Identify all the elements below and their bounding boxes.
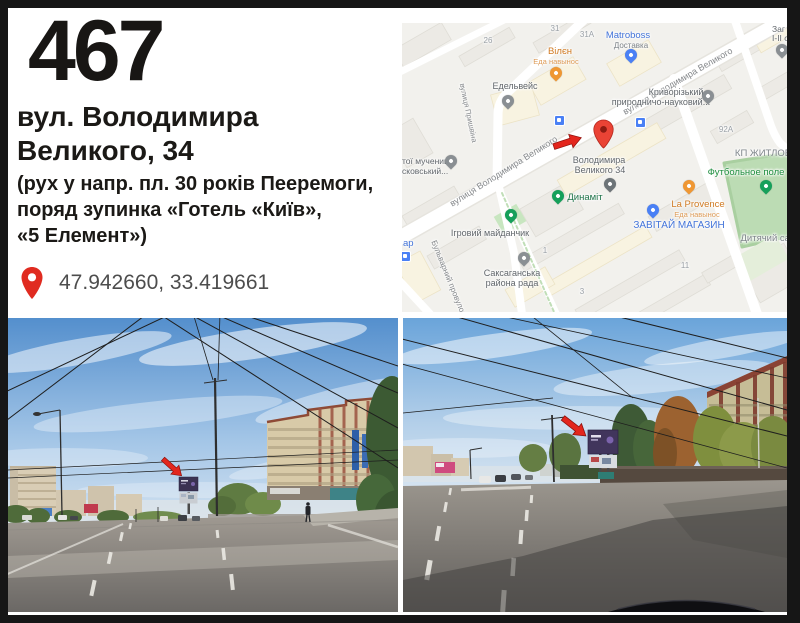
poi-church-sub: сковський... bbox=[402, 167, 448, 176]
map-screenshot: вулиця Володимира Великого вулиця Володи… bbox=[402, 23, 787, 312]
coordinates-row: 47.942660, 33.419661 bbox=[20, 266, 269, 300]
note-line-3: «5 Елемент») bbox=[17, 223, 373, 249]
billboard-location-card: 467 вул. Володимира Великого, 34 (рух у … bbox=[0, 0, 800, 623]
poi-zah-sub: І-ІІ с bbox=[772, 34, 787, 43]
card-inner: 467 вул. Володимира Великого, 34 (рух у … bbox=[8, 8, 787, 615]
distant-billboard bbox=[84, 504, 98, 513]
coordinates-text: 47.942660, 33.419661 bbox=[59, 271, 269, 295]
note-line-1: (рух у напр. пл. 30 років Пееремоги, bbox=[17, 171, 373, 197]
building-number: 31А bbox=[580, 31, 594, 39]
poi-football-field: Футбольное поле bbox=[708, 168, 785, 178]
address-line-1: вул. Володимира bbox=[17, 100, 258, 134]
poi-vilen-sub: Еда навынос bbox=[533, 58, 578, 66]
direction-note: (рух у напр. пл. 30 років Пееремоги, пор… bbox=[17, 171, 373, 249]
poi-church: тої мучениці bbox=[402, 157, 451, 166]
board-number: 467 bbox=[28, 2, 163, 101]
bus-stop-icon bbox=[635, 117, 646, 128]
poi-playground: Ігровий майданчик bbox=[451, 229, 529, 238]
address: вул. Володимира Великого, 34 bbox=[17, 100, 258, 168]
building-number: 1 bbox=[543, 247, 547, 255]
building-number: 31 bbox=[551, 25, 560, 33]
street-lamp bbox=[33, 412, 41, 416]
building-number: 92А bbox=[719, 126, 733, 134]
note-line-2: поряд зупинка «Готель «Київ», bbox=[17, 197, 373, 223]
poi-vilen: Вілєн bbox=[548, 47, 572, 57]
poi-saksahanska-sub: района рада bbox=[486, 279, 539, 288]
poi-target-address-sub: Великого 34 bbox=[575, 166, 626, 175]
info-panel: 467 вул. Володимира Великого, 34 (рух у … bbox=[8, 8, 400, 313]
poi-matroboss: Matroboss bbox=[606, 31, 650, 41]
poi-kp-zhytlov: КП ЖИТЛОВ bbox=[735, 149, 787, 159]
poi-dynamit: Динаміт bbox=[567, 193, 602, 203]
ar-transit-icon bbox=[402, 251, 411, 262]
building-banner bbox=[352, 430, 359, 470]
street-photo-right bbox=[403, 318, 787, 612]
building-number: 26 bbox=[484, 37, 493, 45]
poi-zavitai: ЗАВІТАЙ МАГАЗИН bbox=[633, 221, 724, 232]
map-destination-pin-icon bbox=[592, 119, 615, 149]
poi-kryvorizkyi-sub: природничо-науковий... bbox=[612, 98, 710, 107]
kiosk bbox=[598, 472, 614, 479]
poi-la-provence: La Provence bbox=[671, 200, 724, 210]
street-photo-left bbox=[8, 318, 398, 612]
poi-edelveis: Едельвейс bbox=[492, 82, 537, 91]
poi-ar-partial: ар bbox=[403, 239, 414, 249]
address-line-2: Великого, 34 bbox=[17, 134, 258, 168]
photo-right-scene bbox=[403, 318, 787, 612]
building-number: 11 bbox=[681, 262, 689, 270]
bus-stop-icon bbox=[554, 115, 565, 126]
building-number: 3 bbox=[580, 288, 584, 296]
poi-kindergarten: Дитячий сад bbox=[740, 234, 787, 244]
map-pin-icon bbox=[20, 266, 44, 300]
photo-left-scene bbox=[8, 318, 398, 612]
poi-la-provence-sub: Еда навынос bbox=[674, 211, 719, 219]
map-location-arrow-icon bbox=[552, 133, 584, 151]
